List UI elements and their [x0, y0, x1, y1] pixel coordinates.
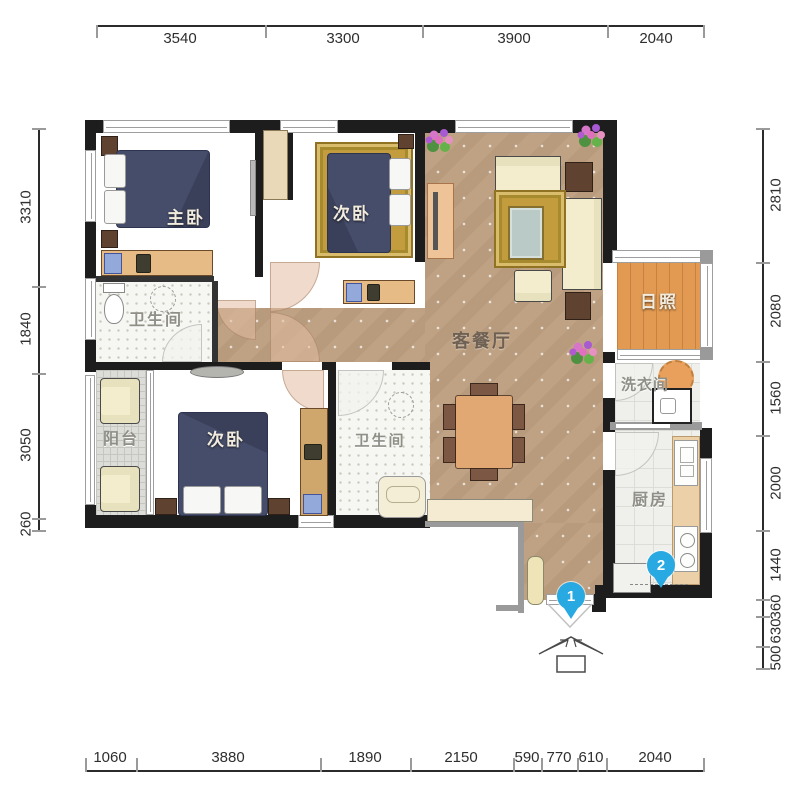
dimension-line-top [96, 25, 705, 27]
pillow [183, 486, 221, 514]
wall-gray [518, 521, 524, 613]
entry-arrow-icon [533, 630, 609, 676]
burner [680, 553, 695, 568]
window-bedroom2-top [280, 120, 338, 133]
flower-plant-icon [424, 126, 454, 156]
dim-bottom-3: 2150 [444, 749, 477, 766]
nightstand [101, 230, 118, 248]
kitchen-sink [674, 440, 698, 486]
desk-chair [346, 283, 362, 302]
passthrough-window [616, 424, 670, 428]
desk-object [136, 254, 151, 273]
tick [756, 530, 770, 532]
marker-number: 1 [557, 582, 585, 610]
sofa-three-seat [562, 198, 602, 290]
room-label-laundry: 洗衣间 [621, 374, 669, 395]
washer-door [660, 398, 676, 414]
wall-gray [496, 605, 524, 611]
marker-number: 2 [647, 551, 675, 579]
nightstand [155, 498, 177, 515]
dining-chair [470, 383, 498, 396]
dim-right-1: 2080 [768, 294, 785, 327]
desk-object [304, 444, 322, 460]
dim-right-7: 500 [768, 645, 785, 670]
frame-corner [700, 347, 713, 360]
room-label-bathroom1: 卫生间 [129, 306, 183, 330]
bathtub [378, 476, 426, 518]
sink [388, 392, 414, 418]
room-label-bedroom2-top: 次卧 [333, 200, 371, 225]
dim-top-1: 3300 [326, 30, 359, 47]
wall-laundry-left [603, 352, 615, 363]
balcony-armchair [100, 466, 140, 512]
tick [85, 758, 87, 772]
dim-right-6: 630 [768, 618, 785, 643]
tick [410, 758, 412, 772]
tick [541, 758, 543, 772]
dim-left-2: 3050 [18, 428, 35, 461]
room-label-master-bedroom: 主卧 [167, 204, 205, 229]
room-label-bathroom2: 卫生间 [354, 430, 405, 451]
sink-basin [680, 465, 694, 477]
dim-right-0: 2810 [768, 178, 785, 211]
window-bedroom2-bottom [298, 515, 334, 528]
tick [756, 361, 770, 363]
sink-basin [680, 447, 694, 463]
dining-chair [512, 404, 525, 430]
tick [32, 373, 46, 375]
coffee-table [508, 206, 544, 260]
dim-right-4: 1440 [768, 548, 785, 581]
dining-chair [443, 404, 456, 430]
shoe-cabinet [427, 499, 533, 522]
toilet-tank [103, 283, 125, 293]
wall-closet [288, 133, 293, 200]
tick [606, 758, 608, 772]
room-label-living-dining: 客餐厅 [452, 327, 512, 353]
dim-left-1: 1840 [18, 312, 35, 345]
wall-left [85, 222, 96, 278]
dim-top-2: 3900 [497, 30, 530, 47]
dining-chair [443, 437, 456, 463]
dim-bottom-5: 770 [546, 749, 571, 766]
wall-mirror [250, 160, 256, 216]
tick [32, 128, 46, 130]
dining-chair [512, 437, 525, 463]
tick [96, 25, 98, 38]
floor-plan-canvas: 3540 3300 3900 2040 1060 3880 1890 2150 … [0, 0, 800, 800]
pillow [104, 154, 126, 188]
tick [32, 286, 46, 288]
room-label-kitchen: 厨房 [632, 486, 668, 510]
wall-entry-right [592, 594, 606, 612]
ceiling-lamp [190, 366, 244, 378]
dim-right-5: 360 [768, 594, 785, 619]
dining-chair [470, 468, 498, 481]
wall-kitchen-right [700, 533, 712, 598]
side-table [565, 292, 591, 320]
dim-right-2: 1560 [768, 381, 785, 414]
flower-plant-icon [576, 121, 606, 151]
tick [756, 262, 770, 264]
stove [674, 526, 698, 572]
frame-corner [700, 250, 713, 263]
wall-bath2-left [328, 370, 336, 515]
side-table [565, 162, 593, 192]
tick [703, 758, 705, 772]
tv [433, 192, 438, 250]
nightstand [268, 498, 290, 515]
window-balcony-left [85, 375, 95, 505]
pillow [224, 486, 262, 514]
desk-chair [303, 494, 322, 514]
burner [680, 533, 695, 548]
tick [422, 25, 424, 38]
kitchen-cabinet [613, 563, 651, 593]
desk-chair [104, 253, 122, 274]
nightstand [398, 134, 414, 149]
bathtub-basin [386, 486, 420, 503]
tick [756, 435, 770, 437]
wall-master-right [255, 133, 263, 277]
toilet [104, 294, 124, 324]
wall-bath2-top [392, 362, 430, 370]
sunroom-window-right [700, 263, 713, 349]
armchair [514, 270, 552, 302]
dining-table [455, 395, 513, 469]
tick [265, 25, 267, 38]
dimension-line-left [38, 128, 40, 531]
dim-left-3: 260 [18, 511, 35, 536]
dim-right-3: 2000 [768, 466, 785, 499]
dimension-line-right [762, 128, 764, 670]
window-balcony-bedroom [146, 370, 154, 515]
tick [320, 758, 322, 772]
window-master-top [103, 120, 230, 133]
pillow [389, 158, 411, 190]
dim-bottom-1: 3880 [211, 749, 244, 766]
marker-pin-2[interactable]: 2 [647, 551, 675, 593]
tick [703, 25, 705, 38]
dim-bottom-7: 2040 [638, 749, 671, 766]
balcony-armchair [100, 378, 140, 424]
window-master-left [85, 150, 96, 222]
entry-bench [527, 556, 544, 605]
pillow [104, 190, 126, 224]
wardrobe [263, 130, 288, 200]
tick [756, 128, 770, 130]
dimension-line-bottom [85, 770, 705, 772]
tick [607, 25, 609, 38]
pillow [389, 194, 411, 226]
wall-kitchen-right [700, 428, 712, 458]
marker-pin-1[interactable]: 1 [557, 582, 585, 624]
dim-top-0: 3540 [163, 30, 196, 47]
dim-bottom-4: 590 [514, 749, 539, 766]
dim-left-0: 3310 [18, 190, 35, 223]
room-label-bedroom2-bottom: 次卧 [207, 426, 245, 451]
dim-bottom-2: 1890 [348, 749, 381, 766]
wall-bath1-top [96, 276, 214, 282]
wall-mid-horizontal [322, 362, 336, 370]
desk-object [367, 284, 380, 301]
wall-mid-horizontal [85, 362, 282, 370]
dim-bottom-6: 610 [578, 749, 603, 766]
room-label-sunroom: 日照 [640, 288, 678, 313]
dim-bottom-0: 1060 [93, 749, 126, 766]
flower-plant-icon [568, 338, 598, 368]
sunroom-window-top [612, 250, 713, 263]
wall-bath1-right [212, 281, 218, 362]
sofa-two-seat [495, 156, 561, 192]
wall-bottom-left [85, 515, 430, 528]
window-living-top [455, 120, 573, 133]
tick [136, 758, 138, 772]
dim-top-3: 2040 [639, 30, 672, 47]
window-bathroom1-left [85, 278, 96, 340]
tv-cabinet [427, 183, 454, 259]
room-label-balcony: 阳台 [103, 425, 139, 449]
wall-left [85, 120, 96, 152]
window-kitchen-right [700, 458, 712, 533]
sunroom-window-bottom [617, 349, 713, 360]
